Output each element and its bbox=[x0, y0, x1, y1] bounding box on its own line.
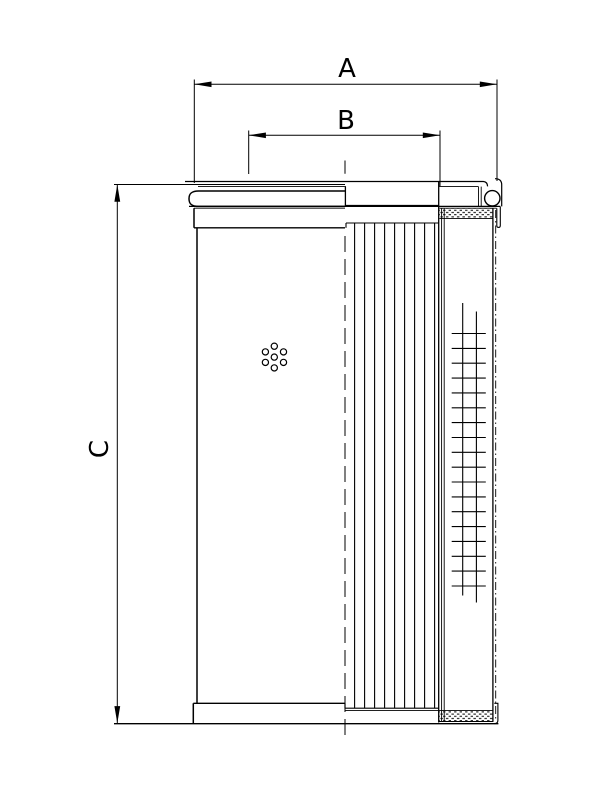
top-gasket-band bbox=[189, 191, 345, 206]
filter-element-front-view bbox=[114, 182, 500, 724]
dimension-b: B bbox=[249, 106, 440, 186]
dimension-c: C bbox=[85, 185, 345, 724]
dimension-a-label: A bbox=[338, 54, 356, 84]
o-ring-icon bbox=[485, 191, 500, 206]
dimension-a-arrow-right bbox=[480, 82, 497, 88]
dimension-b-arrow-right bbox=[423, 133, 440, 139]
perforation-dots bbox=[262, 343, 286, 371]
dimension-b-label: B bbox=[337, 106, 355, 136]
dimension-c-arrow-bottom bbox=[114, 706, 120, 723]
dimension-c-label: C bbox=[85, 440, 115, 458]
end-cap-stipple-bottom bbox=[440, 711, 493, 721]
cross-section bbox=[439, 179, 502, 724]
filter-element-technical-drawing: A B C bbox=[0, 0, 612, 792]
dimension-b-arrow-left bbox=[249, 133, 266, 139]
pleat-lines bbox=[355, 223, 435, 708]
dimension-a-arrow-left bbox=[194, 82, 211, 88]
support-mesh-grid bbox=[452, 303, 486, 603]
top-flange-tab bbox=[497, 207, 501, 228]
top-rim-line bbox=[185, 182, 488, 187]
o-ring-seal bbox=[439, 179, 502, 207]
dimension-c-arrow-top bbox=[114, 185, 120, 202]
pleated-media bbox=[345, 206, 493, 711]
drawing-page: A B C bbox=[0, 0, 612, 792]
end-cap-stipple-top bbox=[440, 209, 493, 219]
